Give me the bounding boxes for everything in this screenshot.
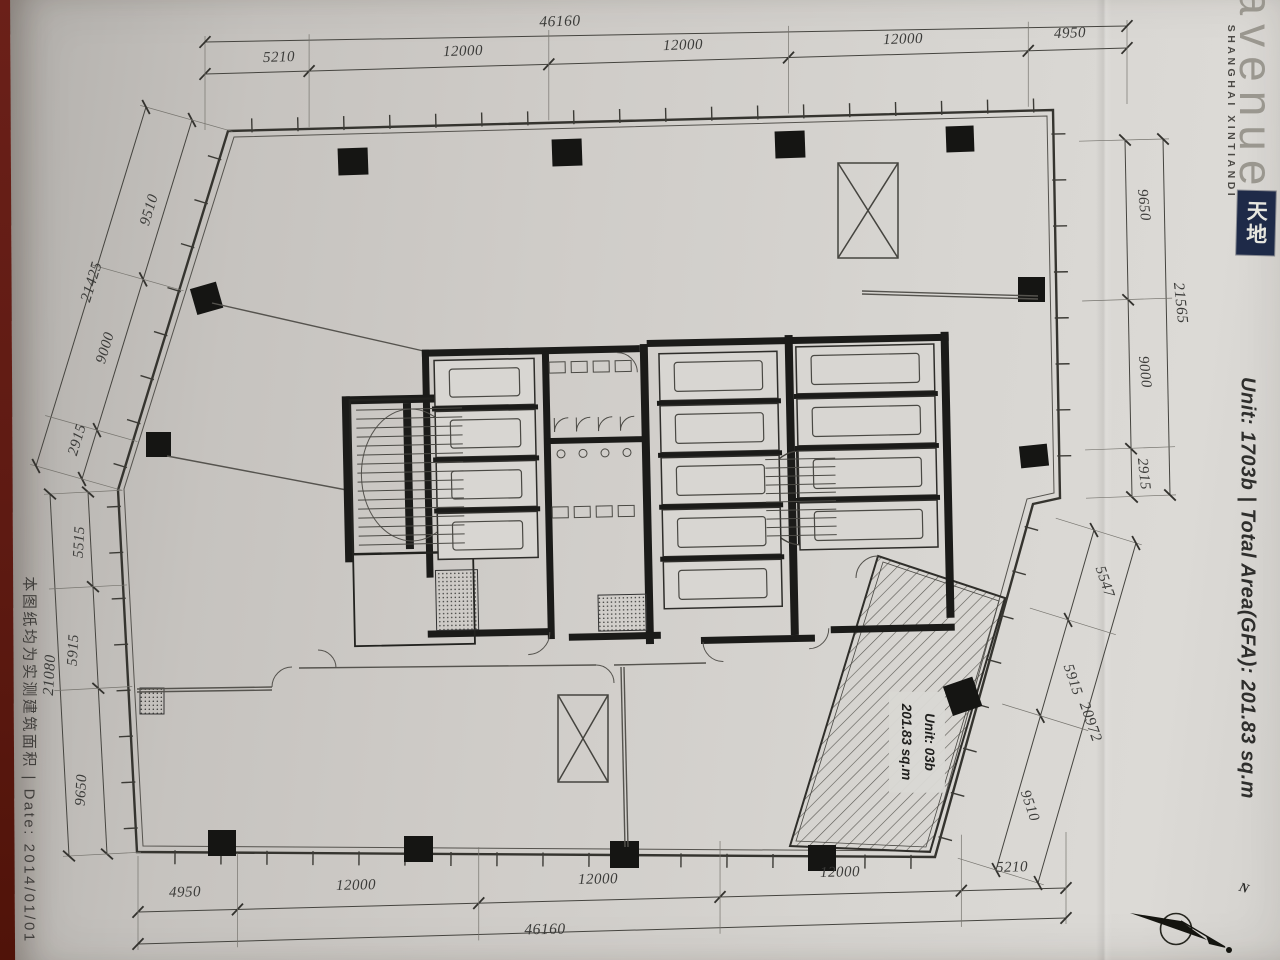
dim-left-lower-seg1: 5515 <box>71 526 90 559</box>
unit-03b-area: 201.83 sq.m <box>894 704 917 781</box>
dim-extension <box>45 416 137 442</box>
dim-line <box>1163 139 1170 495</box>
elevator-cell <box>660 403 779 452</box>
toilet-stall-door <box>554 418 568 432</box>
dim-extension <box>30 464 122 490</box>
toilet-stall-door <box>576 417 590 431</box>
mullion-tick <box>124 828 138 829</box>
unit-03b-area-label: Unit: 03b 201.83 sq.m <box>889 692 945 793</box>
toilet-stall-door <box>598 417 612 431</box>
toilet-fixture <box>571 361 587 372</box>
dim-top-seg5: 4950 <box>1054 25 1087 43</box>
dim-extension <box>49 585 127 589</box>
dimension-lines <box>30 20 1176 950</box>
toilet-fixture <box>549 362 565 373</box>
mullion-tick <box>121 782 135 783</box>
toilet-fixture <box>623 448 631 456</box>
dim-top-seg2: 12000 <box>443 43 484 61</box>
shanghai-xintiandi-label: SHANGHAI XINTIANDI <box>1225 25 1237 199</box>
dim-extension <box>1056 518 1142 545</box>
dim-left-lower-seg2: 5915 <box>65 634 84 667</box>
toilet-fixture <box>596 506 612 517</box>
toilet-fixture <box>579 449 587 457</box>
dim-bottom-seg4: 12000 <box>820 864 860 882</box>
dim-right-upper-seg2: 9000 <box>1134 355 1154 389</box>
mullion-tick <box>114 644 128 645</box>
dim-extension <box>63 852 141 856</box>
elevator-cell <box>799 500 938 550</box>
dim-top-seg1: 5210 <box>263 49 296 67</box>
dim-bottom-seg1: 4950 <box>169 884 201 902</box>
dim-line <box>88 492 107 854</box>
mullion-tick <box>117 690 131 691</box>
unit-title: Unit: 1703b | Total Area(GFA): 201.83 sq… <box>1236 377 1259 799</box>
dim-extension <box>1030 608 1116 635</box>
dim-right-upper-seg3: 2915 <box>1133 457 1153 491</box>
toilet-fixture <box>574 506 590 517</box>
dim-top-total: 46160 <box>539 12 581 31</box>
dim-top-seg4: 12000 <box>883 31 924 49</box>
dim-right-upper-seg1: 9650 <box>1133 188 1153 222</box>
shaft-stipple-1 <box>435 570 478 631</box>
dim-left-lower-total: 21080 <box>40 654 60 696</box>
toilet-fixture <box>552 507 568 518</box>
toilet-fixture <box>593 361 609 372</box>
dim-bottom-total: 46160 <box>524 920 566 939</box>
toilet-stall-door <box>620 416 634 430</box>
mullion-tick <box>109 552 123 553</box>
unit-03b-name: Unit: 03b <box>917 704 940 781</box>
dim-tick <box>142 100 150 114</box>
mullion-tick <box>107 506 121 507</box>
dim-top-seg3: 12000 <box>663 37 704 55</box>
elevator-cell <box>798 448 937 498</box>
mullion-tick <box>119 736 133 737</box>
toilet-fixture <box>601 449 609 457</box>
mullion-tick <box>112 598 126 599</box>
dim-line <box>138 918 1066 944</box>
dim-bottom-seg2: 12000 <box>336 877 376 895</box>
elevator-cell <box>796 344 935 394</box>
elevator-cell <box>662 507 781 556</box>
xintiandi-logo-mark: 天地 <box>1236 191 1276 256</box>
shaft-stipple-2 <box>598 594 647 631</box>
elevator-cell <box>663 559 782 608</box>
toilet-fixture <box>557 450 565 458</box>
north-arrow <box>1130 913 1232 953</box>
dim-left-lower-seg3: 9650 <box>73 774 92 807</box>
dim-bottom-seg5: 5210 <box>996 859 1028 877</box>
dim-line <box>138 888 1066 912</box>
dim-tick <box>1034 876 1042 890</box>
dim-extension <box>140 105 232 131</box>
photographed-floor-plan: 46160 5210 12000 12000 12000 4950 46160 … <box>0 0 1280 960</box>
dim-bottom-seg3: 12000 <box>578 871 618 889</box>
dim-tick <box>32 459 40 473</box>
floor-plan-drawing <box>0 0 1280 960</box>
elevator-cell <box>661 455 780 504</box>
dim-extension <box>44 490 122 494</box>
dim-tick <box>1132 536 1140 550</box>
toilet-fixture <box>618 505 634 516</box>
toilet-fixture <box>615 360 631 371</box>
elevator-cell <box>797 396 936 446</box>
survey-date-note: 本图纸均为实测建筑面积 | Date: 2014/01/01 <box>20 576 41 943</box>
elevator-cell <box>659 351 778 400</box>
